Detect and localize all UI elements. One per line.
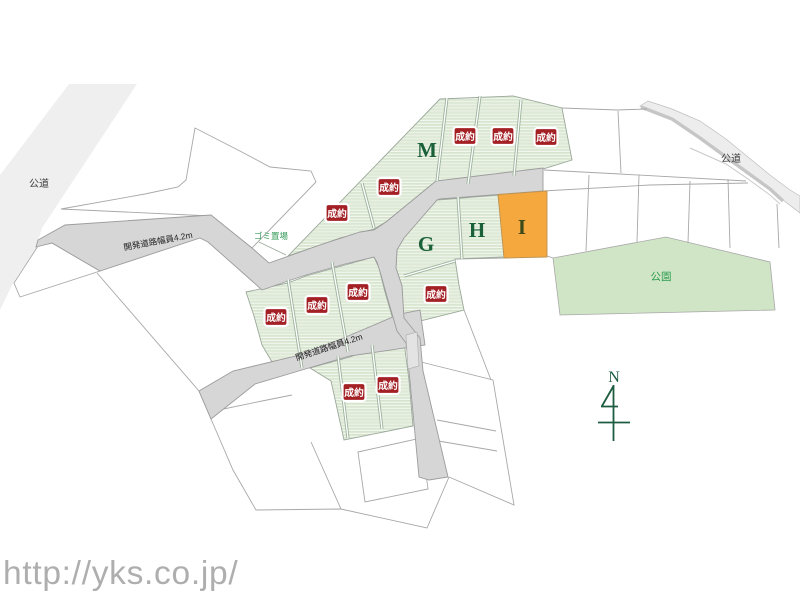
svg-text:M: M (417, 138, 437, 162)
svg-text:成約: 成約 (378, 379, 398, 392)
svg-text:H: H (469, 218, 485, 242)
svg-text:I: I (518, 215, 526, 239)
svg-text:成約: 成約 (348, 286, 368, 299)
svg-text:ゴミ置場: ゴミ置場 (254, 231, 289, 241)
svg-text:成約: 成約 (344, 386, 364, 399)
svg-text:成約: 成約 (307, 299, 327, 312)
svg-text:N: N (608, 369, 620, 386)
svg-text:G: G (418, 232, 434, 256)
svg-text:成約: 成約 (379, 181, 399, 194)
svg-text:http://yks.co.jp/: http://yks.co.jp/ (3, 555, 238, 592)
svg-text:公園: 公園 (651, 271, 672, 283)
svg-text:公道: 公道 (721, 152, 741, 165)
svg-text:成約: 成約 (493, 130, 513, 143)
svg-text:成約: 成約 (455, 130, 475, 143)
svg-text:成約: 成約 (327, 207, 347, 220)
svg-text:公道: 公道 (29, 177, 49, 190)
svg-text:成約: 成約 (536, 131, 556, 144)
svg-text:成約: 成約 (426, 288, 446, 301)
svg-text:成約: 成約 (266, 311, 286, 324)
